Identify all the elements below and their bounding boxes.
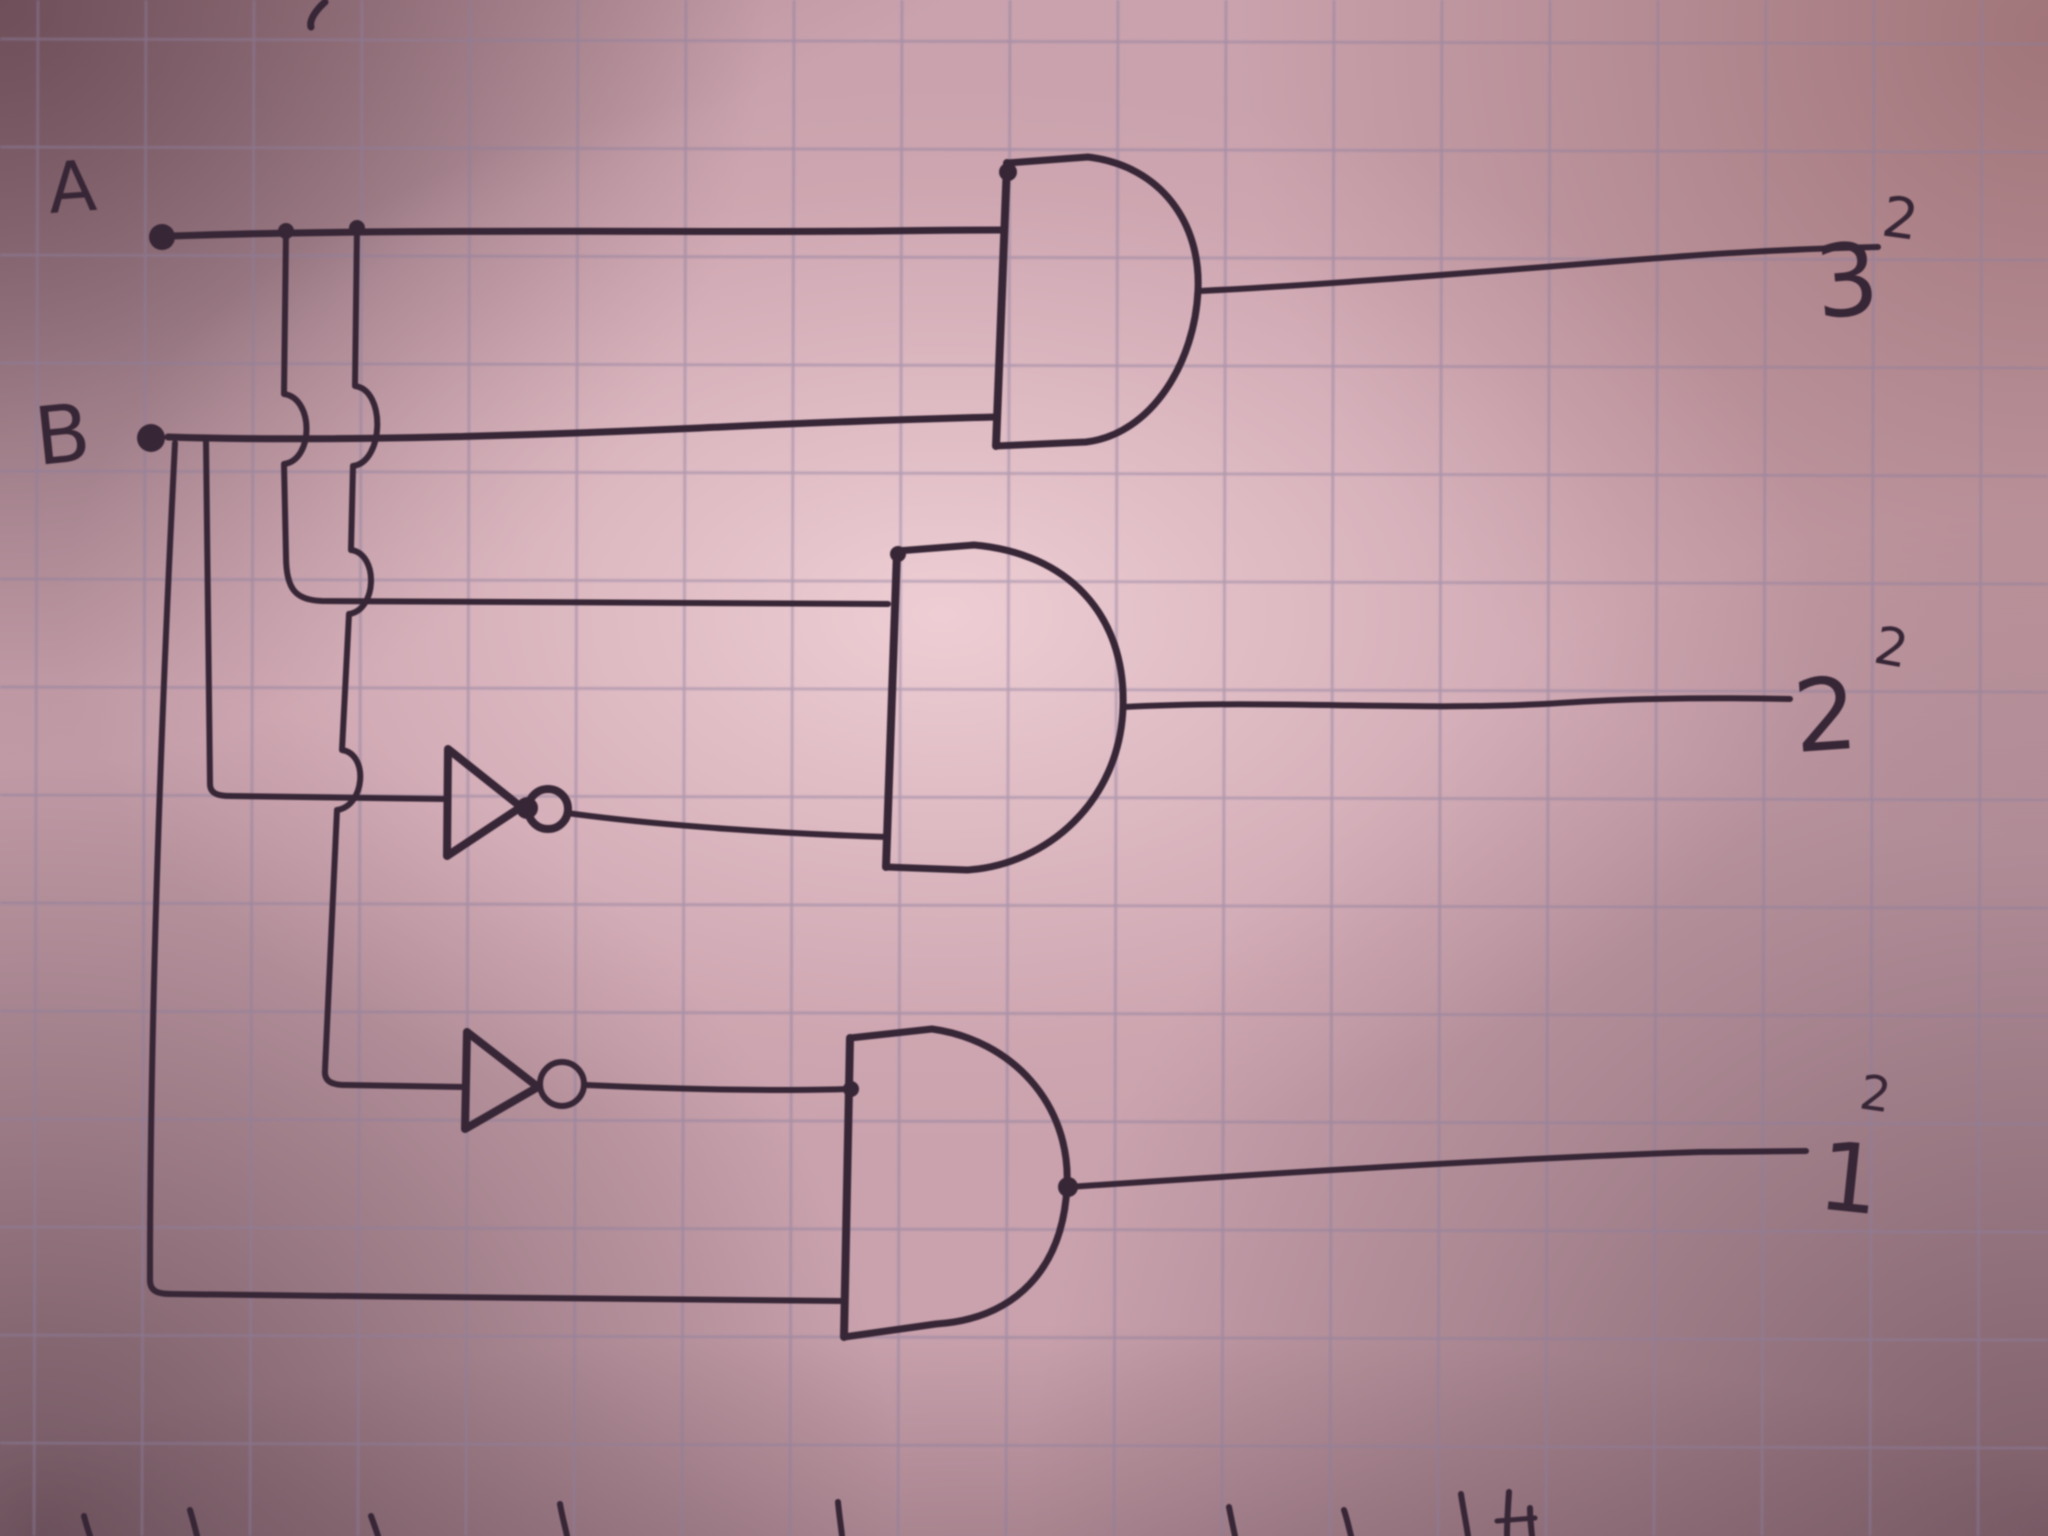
input-a-wire (172, 230, 1004, 236)
not-b-gate-triangle (447, 749, 521, 856)
cutoff-writing-mark-6 (1229, 1507, 1235, 1536)
grid-line-horizontal (0, 1119, 2048, 1124)
not-a-inversion-bubble (540, 1062, 584, 1106)
grid-line-horizontal (0, 363, 2048, 368)
cutoff-writing-mark-9 (1507, 1492, 1509, 1536)
grid-line-horizontal (0, 687, 2048, 692)
cutoff-writing-mark-3 (371, 1516, 378, 1536)
grid-line-vertical (34, 0, 38, 1536)
grid-line-horizontal (0, 1011, 2048, 1016)
grid-line-horizontal (0, 255, 2048, 260)
cutoff-writing-mark-7 (1344, 1510, 1351, 1536)
cutoff-writing-mark-4 (560, 1504, 567, 1536)
and-top-output-wire (1200, 247, 1878, 291)
b-tap-2-wire (206, 441, 446, 799)
stray-pen-mark-top (311, 2, 325, 27)
and-bottom-gate-body (844, 1029, 1067, 1337)
cutoff-writing-mark-8 (1461, 1494, 1468, 1536)
and-bottom-output-blob (1058, 1177, 1078, 1197)
output-3-superscript-label: 2 (1878, 184, 1922, 253)
grid-line-vertical (1330, 0, 1334, 1536)
cutoff-writing-mark-2 (190, 1510, 197, 1536)
and-middle-corner-ink-blob (890, 546, 906, 562)
output-2-label: 2 (1790, 655, 1862, 776)
grid-line-horizontal (0, 1443, 2048, 1448)
and-top-gate-body (996, 157, 1198, 446)
and-top-gate-back (996, 163, 1007, 446)
and-bottom-output-wire (1069, 1151, 1806, 1187)
grid-line-horizontal (0, 579, 2048, 584)
input-b-terminal-dot (137, 424, 165, 452)
grid-line-horizontal (0, 39, 2048, 44)
cutoff-writing-mark-5 (838, 1502, 842, 1536)
ink-drawing: AB322212 (30, 2, 1922, 1536)
grid-line-horizontal (0, 1335, 2048, 1340)
grid-line-vertical (1438, 0, 1442, 1536)
grid-line-horizontal (0, 471, 2048, 476)
grid-line-horizontal (0, 1227, 2048, 1232)
grid-line-horizontal (0, 147, 2048, 152)
logic-circuit-diagram: AB322212 (0, 0, 2048, 1536)
output-2-superscript-label: 2 (1870, 616, 1913, 681)
input-a-label: A (45, 145, 99, 230)
output-3-label: 3 (1810, 220, 1884, 342)
not-a-gate-triangle (465, 1032, 538, 1129)
grid-line-vertical (1114, 0, 1118, 1536)
notebook-paper-photo: AB322212 (0, 0, 2048, 1536)
cutoff-writing-mark-10 (1530, 1508, 1532, 1536)
output-1-label: 1 (1814, 1121, 1886, 1237)
and-middle-gate-body (886, 545, 1123, 870)
input-b-wire (168, 417, 995, 439)
grid-line-vertical (1222, 0, 1226, 1536)
output-1-superscript-label: 2 (1856, 1064, 1894, 1124)
grid-line-vertical (142, 0, 146, 1536)
not-a-output-wire (586, 1085, 848, 1090)
and-top-corner-ink-blob (999, 163, 1017, 181)
grid-line-vertical (1978, 0, 1982, 1536)
not-b-output-wire (567, 813, 887, 837)
a-tap-2-wire (325, 227, 463, 1087)
cutoff-writing-mark-1 (84, 1516, 90, 1536)
and-middle-gate-back (886, 551, 897, 867)
not-a-junction-ink-blob (843, 1081, 859, 1097)
grid-line-vertical (1654, 0, 1658, 1536)
grid-line-vertical (1762, 0, 1766, 1536)
grid-line-vertical (1546, 0, 1550, 1536)
input-a-terminal-dot (149, 224, 175, 250)
cutoff-writing-mark-11 (1497, 1518, 1535, 1521)
grid-line-horizontal (0, 903, 2048, 908)
a-line-junction-dot-2 (349, 220, 365, 236)
input-b-label: B (30, 386, 94, 484)
b-tap-1-wire (150, 443, 843, 1301)
a-line-junction-dot-1 (278, 223, 294, 239)
